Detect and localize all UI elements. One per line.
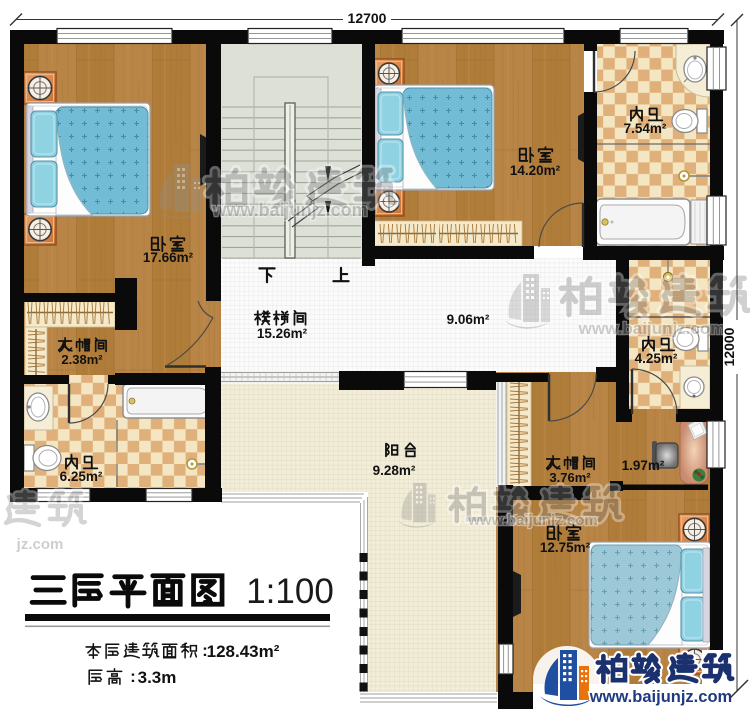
svg-text::: :: [130, 667, 136, 686]
svg-text:6.25m²: 6.25m²: [60, 469, 103, 484]
svg-text:7.54m²: 7.54m²: [624, 121, 667, 136]
svg-text:3.3m: 3.3m: [138, 668, 177, 687]
svg-text:1.97m²: 1.97m²: [622, 458, 665, 473]
svg-text:9.06m²: 9.06m²: [447, 312, 490, 327]
svg-text:1:100: 1:100: [246, 572, 334, 611]
svg-text:128.43m²: 128.43m²: [207, 642, 280, 661]
svg-text:14.20m²: 14.20m²: [510, 163, 561, 178]
svg-text:jz.com: jz.com: [16, 536, 64, 553]
svg-text:www.baijunjz.com: www.baijunjz.com: [211, 200, 367, 220]
svg-text:4.25m²: 4.25m²: [635, 351, 678, 366]
svg-text:2.38m²: 2.38m²: [61, 352, 103, 367]
svg-text:www.baijunjz.com: www.baijunjz.com: [589, 688, 732, 706]
svg-text:17.66m²: 17.66m²: [143, 250, 194, 265]
svg-text:12.75m²: 12.75m²: [540, 540, 591, 555]
svg-text:3.76m²: 3.76m²: [549, 470, 591, 485]
svg-text:9.28m²: 9.28m²: [373, 463, 416, 478]
svg-text:15.26m²: 15.26m²: [257, 326, 308, 341]
svg-text:12700: 12700: [348, 10, 387, 26]
svg-text:12000: 12000: [721, 327, 737, 366]
svg-text:www.baijunjz.com: www.baijunjz.com: [578, 319, 726, 338]
